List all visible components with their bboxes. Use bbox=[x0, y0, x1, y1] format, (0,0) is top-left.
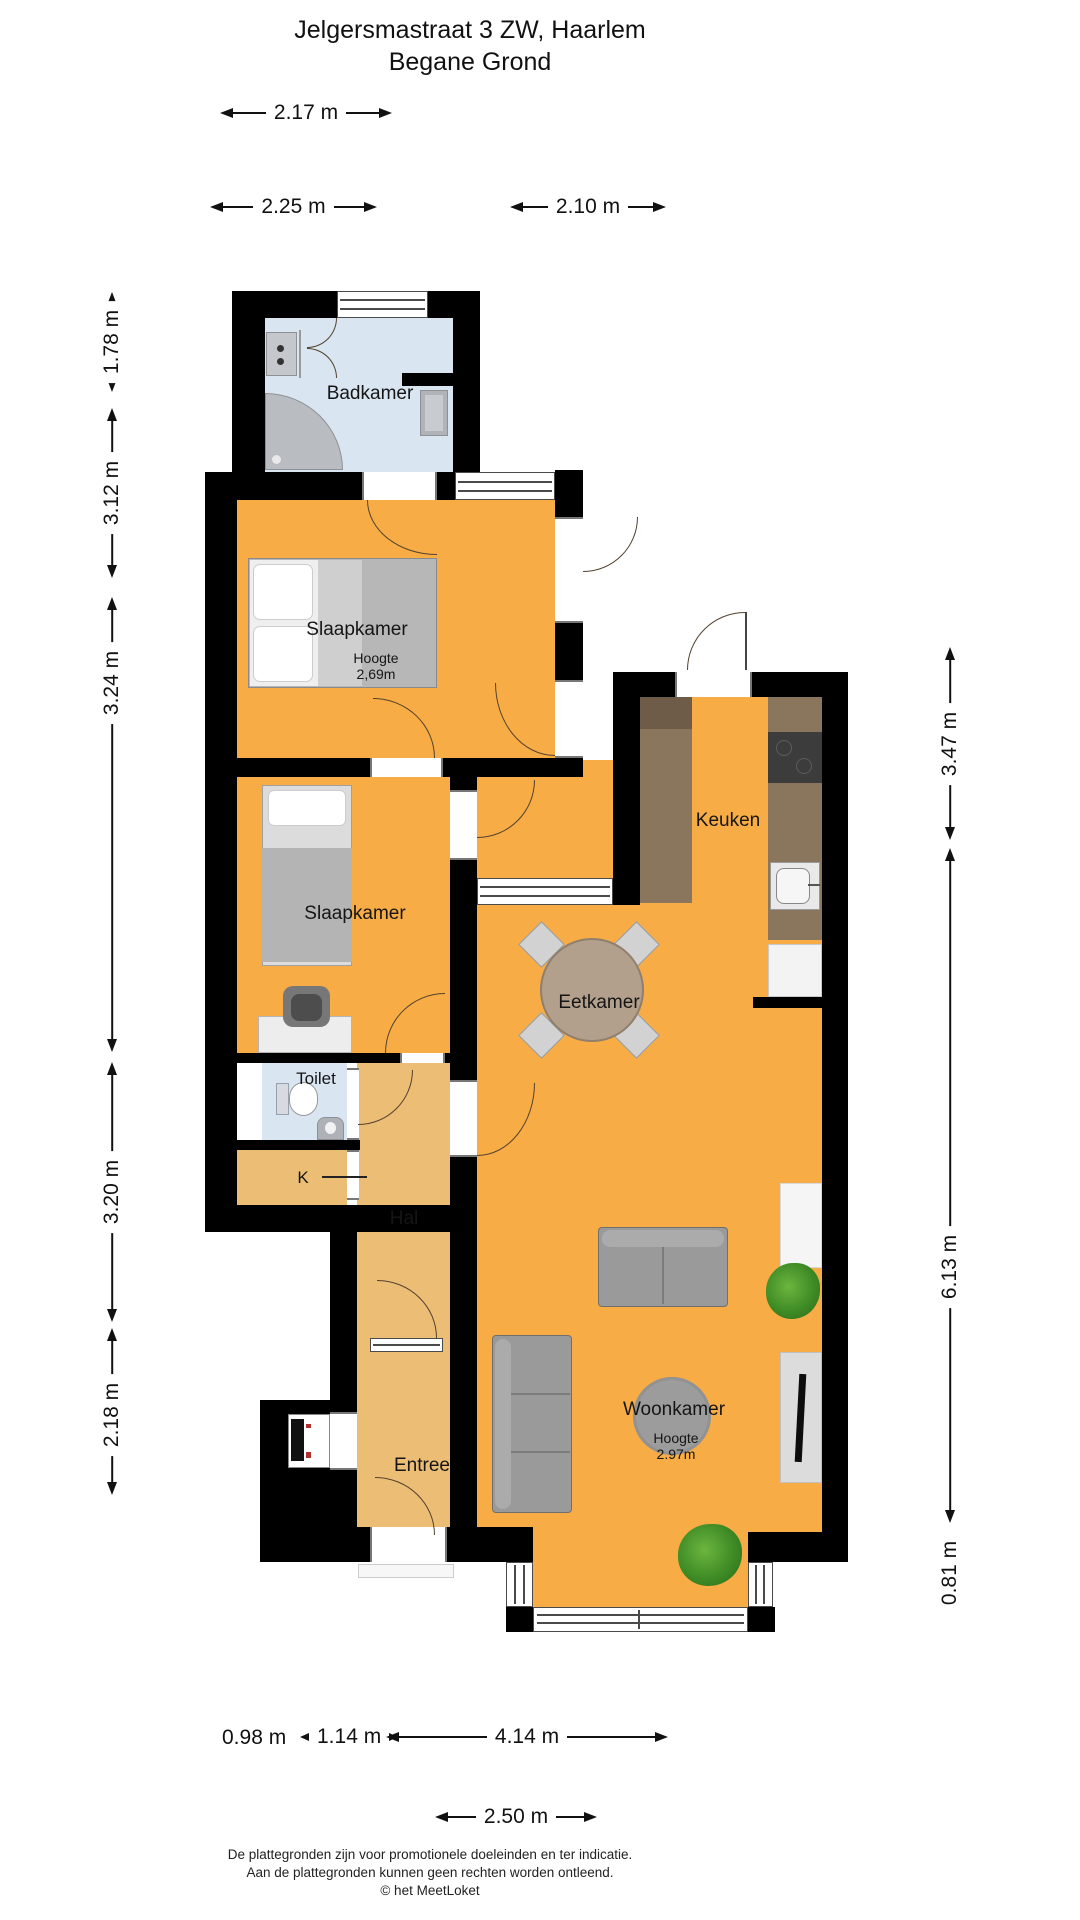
dim-label: 0.81 m bbox=[938, 1532, 962, 1614]
disclaimer: De plattegronden zijn voor promotionele … bbox=[130, 1846, 730, 1900]
window bbox=[506, 1562, 533, 1607]
arrow-left-icon bbox=[435, 1812, 448, 1822]
faucet-icon bbox=[808, 884, 820, 886]
wall bbox=[237, 1140, 360, 1150]
window bbox=[337, 291, 428, 318]
dim-label: 1.78 m bbox=[100, 301, 124, 383]
desk-chair-seat bbox=[291, 994, 322, 1021]
dim-left-218: 2.18 m bbox=[99, 1328, 125, 1495]
toilet-tank bbox=[276, 1083, 289, 1115]
dim-top-217: 2.17 m bbox=[220, 101, 392, 125]
window bbox=[748, 1562, 773, 1607]
window bbox=[455, 472, 555, 500]
closet-rail bbox=[322, 1176, 367, 1178]
dining-table bbox=[540, 938, 644, 1042]
wall bbox=[748, 1607, 775, 1632]
room-label-keuken: Keuken bbox=[696, 810, 760, 832]
dim-bottom-114: 1.14 m bbox=[300, 1725, 384, 1749]
door-leaf bbox=[745, 612, 747, 670]
sofa-backrest bbox=[602, 1230, 724, 1247]
arrow-right-icon bbox=[655, 1732, 668, 1742]
dim-right-613: 6.13 m bbox=[937, 848, 963, 1523]
title-floor: Begane Grond bbox=[110, 46, 830, 78]
washbasin bbox=[266, 332, 297, 376]
door-opening bbox=[370, 758, 443, 777]
washbasin-drain-icon bbox=[277, 345, 284, 352]
arrow-left-icon bbox=[386, 1732, 399, 1742]
dim-label: 2.50 m bbox=[476, 1805, 556, 1829]
dim-label: 1.14 m bbox=[309, 1725, 389, 1749]
door-opening bbox=[675, 672, 752, 697]
door-opening bbox=[347, 1150, 359, 1200]
arrow-right-icon bbox=[653, 202, 666, 212]
dim-right-347: 3.47 m bbox=[937, 647, 963, 840]
sofa-backrest bbox=[495, 1339, 511, 1509]
cabinet-white bbox=[780, 1183, 822, 1268]
wall bbox=[330, 1232, 357, 1412]
dim-left-312: 3.12 m bbox=[99, 408, 125, 578]
meter-led-icon bbox=[306, 1452, 311, 1458]
sofa-cushion-split bbox=[511, 1451, 570, 1453]
door-opening bbox=[555, 517, 583, 623]
door-opening bbox=[450, 790, 477, 860]
room-height-value: 2.97m bbox=[657, 1446, 696, 1462]
dim-label: 3.20 m bbox=[100, 1151, 124, 1233]
toilet-closet-strip bbox=[237, 1063, 263, 1140]
meter-led-icon bbox=[306, 1424, 311, 1428]
radiator-inner bbox=[425, 395, 443, 431]
dim-bottom-414: 4.14 m bbox=[386, 1725, 668, 1749]
entrance-step bbox=[358, 1564, 454, 1578]
shower-drain-icon bbox=[272, 455, 281, 464]
room-label-entree: Entree bbox=[394, 1455, 450, 1477]
dim-top-225: 2.25 m bbox=[210, 195, 377, 219]
dim-label: 3.24 m bbox=[100, 642, 124, 724]
room-label-eetkamer: Eetkamer bbox=[558, 992, 639, 1014]
floor-plan-canvas: Jelgersmastraat 3 ZW, Haarlem Begane Gro… bbox=[0, 0, 1080, 1920]
room-label-badkamer: Badkamer bbox=[327, 383, 414, 405]
dim-label: 2.18 m bbox=[100, 1374, 124, 1456]
meter-cupboard-door bbox=[330, 1412, 357, 1470]
sofa-cushion-split bbox=[511, 1393, 570, 1395]
meter-panel-icon bbox=[291, 1419, 304, 1461]
arrow-left-icon bbox=[210, 202, 223, 212]
disclaimer-line2: Aan de plattegronden kunnen geen rechten… bbox=[130, 1864, 730, 1882]
dim-left-178: 1.78 m bbox=[99, 292, 125, 392]
door-arc bbox=[583, 517, 638, 572]
sink-basin bbox=[776, 868, 810, 904]
washbasin-tap-icon bbox=[277, 358, 284, 365]
burner-icon bbox=[796, 758, 812, 774]
door-arc bbox=[687, 612, 745, 670]
window bbox=[477, 878, 613, 905]
dim-label: 6.13 m bbox=[938, 1225, 962, 1307]
title-address: Jelgersmastraat 3 ZW, Haarlem bbox=[110, 14, 830, 46]
sofa-cushion-split bbox=[662, 1247, 664, 1304]
burner-icon bbox=[776, 740, 792, 756]
dim-label: 3.12 m bbox=[100, 452, 124, 534]
arrow-right-icon bbox=[364, 202, 377, 212]
pillow bbox=[268, 790, 346, 826]
room-height-label: Hoogte bbox=[353, 650, 398, 666]
room-height-label: Hoogte bbox=[653, 1430, 698, 1446]
wall bbox=[753, 997, 822, 1008]
wall bbox=[822, 672, 848, 1562]
dim-bottom-250: 2.50 m bbox=[435, 1805, 597, 1829]
wall bbox=[506, 1607, 533, 1632]
door-opening bbox=[362, 472, 437, 500]
copyright: © het MeetLoket bbox=[130, 1882, 730, 1900]
wall bbox=[232, 291, 265, 500]
arrow-right-icon bbox=[379, 108, 392, 118]
room-label-toilet: Toilet bbox=[296, 1069, 336, 1089]
sink-basin-icon bbox=[325, 1122, 336, 1134]
dim-label: 2.25 m bbox=[253, 195, 333, 219]
arrow-left-icon bbox=[300, 1733, 309, 1741]
dim-label: 4.14 m bbox=[487, 1725, 567, 1749]
washbasin-counter-edge bbox=[299, 330, 301, 378]
cooktop bbox=[768, 732, 822, 783]
appliance-white bbox=[768, 944, 822, 997]
room-label-slaapkamer2: Slaapkamer bbox=[304, 903, 405, 925]
arrow-left-icon bbox=[510, 202, 523, 212]
door-opening bbox=[400, 1053, 445, 1063]
dim-right-081: 0.81 m bbox=[937, 1523, 963, 1623]
wall bbox=[453, 291, 480, 472]
room-label-hal: Hal bbox=[390, 1208, 419, 1230]
room-label-kast: K bbox=[297, 1168, 308, 1188]
dim-top-210: 2.10 m bbox=[510, 195, 666, 219]
dim-bottom-098: 0.98 m bbox=[222, 1726, 286, 1750]
kitchen-cabinet-tall bbox=[640, 697, 692, 729]
pillow bbox=[253, 564, 313, 620]
dim-left-320: 3.20 m bbox=[99, 1062, 125, 1322]
page-title: Jelgersmastraat 3 ZW, Haarlem Begane Gro… bbox=[110, 14, 830, 78]
arrow-left-icon bbox=[220, 108, 233, 118]
arrow-right-icon bbox=[584, 1812, 597, 1822]
room-height-value: 2,69m bbox=[357, 666, 396, 682]
dim-label: 3.47 m bbox=[938, 702, 962, 784]
disclaimer-line1: De plattegronden zijn voor promotionele … bbox=[130, 1846, 730, 1864]
room-label-slaapkamer1: Slaapkamer bbox=[306, 619, 407, 641]
wall bbox=[613, 672, 640, 905]
wall bbox=[205, 472, 237, 1232]
pillow bbox=[253, 626, 313, 682]
bay-window bbox=[533, 1607, 748, 1632]
wall bbox=[450, 777, 477, 1562]
door-opening bbox=[450, 1080, 477, 1157]
door-opening bbox=[555, 680, 583, 758]
dim-label: 2.17 m bbox=[266, 101, 346, 125]
room-label-woonkamer: Woonkamer bbox=[623, 1399, 725, 1421]
dim-left-324: 3.24 m bbox=[99, 597, 125, 1052]
dim-label: 2.10 m bbox=[548, 195, 628, 219]
